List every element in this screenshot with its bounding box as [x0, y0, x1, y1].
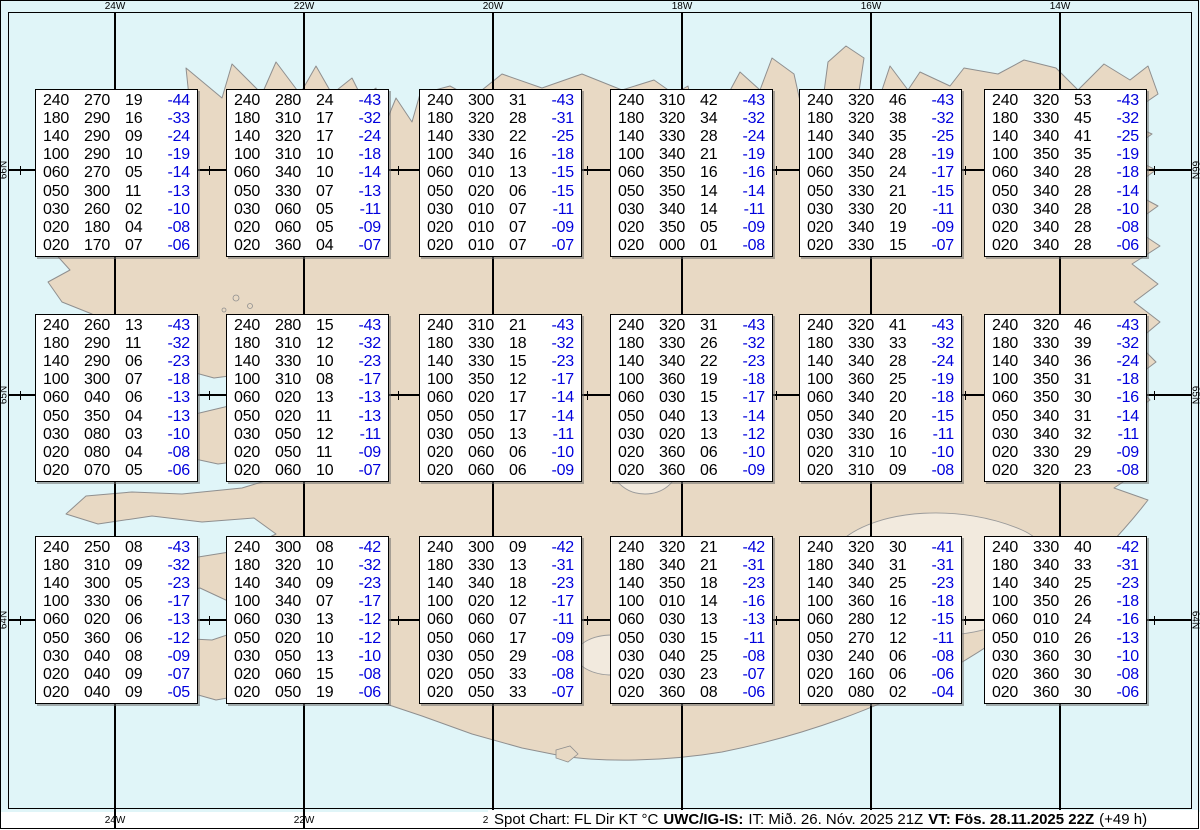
kt-value: 05 — [700, 219, 722, 236]
kt-value: 31 — [889, 557, 911, 574]
kt-value: 12 — [509, 593, 531, 610]
fl-value: 100 — [234, 371, 264, 388]
temp-value: -23 — [922, 575, 954, 592]
temp-value: -43 — [733, 317, 765, 334]
temp-value: -08 — [158, 219, 190, 236]
temp-value: -06 — [1107, 237, 1139, 254]
fl-value: 140 — [234, 575, 264, 592]
temp-value: -43 — [922, 92, 954, 109]
dir-value: 360 — [1033, 648, 1063, 665]
fl-value: 180 — [618, 110, 648, 127]
kt-value: 05 — [125, 462, 147, 479]
spot-row: 14034035-25 — [800, 128, 961, 145]
temp-value: -32 — [349, 110, 381, 127]
kt-value: 30 — [1074, 389, 1096, 406]
dir-value: 010 — [468, 201, 498, 218]
dir-value: 180 — [84, 219, 114, 236]
fl-value: 140 — [43, 353, 73, 370]
spot-row: 06034028-18 — [985, 164, 1146, 181]
spot-row: 06034010-14 — [227, 164, 388, 181]
temp-value: -42 — [349, 539, 381, 556]
spot-row: 10035026-18 — [985, 593, 1146, 610]
kt-value: 08 — [700, 684, 722, 701]
temp-value: -23 — [1107, 575, 1139, 592]
fl-value: 020 — [807, 684, 837, 701]
fl-value: 180 — [807, 557, 837, 574]
temp-value: -25 — [1107, 128, 1139, 145]
fl-value: 030 — [427, 426, 457, 443]
longitude-label: 16W — [861, 1, 882, 12]
kt-value: 12 — [889, 630, 911, 647]
fl-value: 030 — [43, 648, 73, 665]
spot-row: 05002011-13 — [227, 408, 388, 425]
fl-value: 020 — [427, 666, 457, 683]
spot-row: 10035012-17 — [420, 371, 581, 388]
kt-value: 21 — [700, 557, 722, 574]
spot-row: 06035030-16 — [985, 389, 1146, 406]
kt-value: 14 — [700, 593, 722, 610]
kt-value: 26 — [700, 335, 722, 352]
kt-value: 53 — [1074, 92, 1096, 109]
spot-row: 10035035-19 — [985, 146, 1146, 163]
fl-value: 100 — [43, 146, 73, 163]
dir-value: 360 — [1033, 684, 1063, 701]
dir-value: 010 — [1033, 611, 1063, 628]
spot-row: 10030007-18 — [36, 371, 197, 388]
kt-value: 10 — [889, 444, 911, 461]
kt-value: 19 — [700, 371, 722, 388]
temp-value: -19 — [922, 146, 954, 163]
spot-row: 03034014-11 — [611, 201, 772, 218]
dir-value: 020 — [468, 389, 498, 406]
temp-value: -16 — [1107, 611, 1139, 628]
dir-value: 330 — [468, 128, 498, 145]
fl-value: 050 — [234, 630, 264, 647]
temp-value: -43 — [349, 92, 381, 109]
temp-value: -14 — [1107, 183, 1139, 200]
temp-value: -13 — [733, 611, 765, 628]
spot-row: 02036030-08 — [985, 666, 1146, 683]
fl-value: 060 — [618, 164, 648, 181]
spot-row: 02006010-07 — [227, 462, 388, 479]
spot-row: 24032046-43 — [800, 92, 961, 109]
dir-value: 040 — [84, 648, 114, 665]
spot-row: 10033006-17 — [36, 593, 197, 610]
dir-value: 040 — [84, 684, 114, 701]
fl-value: 240 — [234, 92, 264, 109]
fl-value: 100 — [992, 371, 1022, 388]
temp-value: -15 — [542, 164, 574, 181]
spot-row: 24026013-43 — [36, 317, 197, 334]
kt-value: 15 — [509, 353, 531, 370]
temp-value: -17 — [158, 593, 190, 610]
dir-value: 060 — [468, 611, 498, 628]
spot-row: 05036006-12 — [36, 630, 197, 647]
kt-value: 11 — [125, 335, 147, 352]
spot-forecast-table-64N-18W: 24032021-4218034021-3114035018-231000101… — [610, 536, 773, 704]
dir-value: 050 — [275, 426, 305, 443]
temp-value: -08 — [1107, 666, 1139, 683]
fl-value: 030 — [43, 201, 73, 218]
temp-value: -10 — [349, 648, 381, 665]
fl-value: 100 — [807, 371, 837, 388]
temp-value: -13 — [158, 183, 190, 200]
kt-value: 28 — [889, 353, 911, 370]
fl-value: 100 — [807, 146, 837, 163]
kt-value: 10 — [316, 146, 338, 163]
dir-value: 350 — [659, 219, 689, 236]
fl-value: 100 — [234, 146, 264, 163]
dir-value: 030 — [659, 389, 689, 406]
temp-value: -08 — [733, 648, 765, 665]
temp-value: -32 — [158, 335, 190, 352]
dir-value: 320 — [1033, 92, 1063, 109]
dir-value: 340 — [1033, 557, 1063, 574]
dir-value: 350 — [1033, 146, 1063, 163]
kt-value: 30 — [889, 539, 911, 556]
temp-value: -12 — [158, 630, 190, 647]
kt-value: 11 — [316, 444, 338, 461]
spot-forecast-table-66N-18W: 24031042-4318032034-3214033028-241003402… — [610, 89, 773, 257]
kt-value: 13 — [316, 389, 338, 406]
dir-value: 300 — [468, 539, 498, 556]
fl-value: 180 — [43, 335, 73, 352]
spot-row: 10034016-18 — [420, 146, 581, 163]
temp-value: -18 — [922, 389, 954, 406]
kt-value: 17 — [509, 389, 531, 406]
fl-value: 140 — [427, 128, 457, 145]
kt-value: 12 — [316, 426, 338, 443]
kt-value: 25 — [889, 371, 911, 388]
temp-value: -17 — [349, 593, 381, 610]
kt-value: 25 — [700, 648, 722, 665]
fl-value: 020 — [234, 462, 264, 479]
fl-value: 020 — [807, 219, 837, 236]
dir-value: 350 — [848, 164, 878, 181]
temp-value: -14 — [733, 183, 765, 200]
spot-row: 24027019-44 — [36, 92, 197, 109]
dir-value: 340 — [468, 146, 498, 163]
temp-value: -11 — [542, 611, 574, 628]
spot-row: 24031021-43 — [420, 317, 581, 334]
spot-row: 14032017-24 — [227, 128, 388, 145]
kt-value: 28 — [1074, 183, 1096, 200]
dir-value: 290 — [84, 353, 114, 370]
temp-value: -32 — [1107, 335, 1139, 352]
temp-value: -31 — [922, 557, 954, 574]
kt-value: 19 — [889, 219, 911, 236]
kt-value: 31 — [700, 317, 722, 334]
fl-value: 060 — [618, 611, 648, 628]
dir-value: 040 — [659, 648, 689, 665]
fl-value: 020 — [427, 237, 457, 254]
fl-value: 180 — [618, 335, 648, 352]
temp-value: -31 — [542, 557, 574, 574]
spot-row: 14034036-24 — [985, 353, 1146, 370]
kt-value: 17 — [509, 408, 531, 425]
temp-value: -07 — [542, 684, 574, 701]
spot-row: 14033010-23 — [227, 353, 388, 370]
fl-value: 180 — [234, 110, 264, 127]
fl-value: 240 — [807, 317, 837, 334]
kt-value: 07 — [509, 201, 531, 218]
temp-value: -11 — [542, 426, 574, 443]
kt-value: 09 — [125, 557, 147, 574]
fl-value: 020 — [992, 684, 1022, 701]
kt-value: 46 — [889, 92, 911, 109]
temp-value: -09 — [542, 462, 574, 479]
spot-forecast-table-66N-22W: 24028024-4318031017-3214032017-241003101… — [226, 89, 389, 257]
fl-value: 180 — [234, 557, 264, 574]
fl-value: 140 — [43, 128, 73, 145]
kt-value: 04 — [125, 408, 147, 425]
spot-row: 05027012-11 — [800, 630, 961, 647]
temp-value: -14 — [1107, 408, 1139, 425]
dir-value: 340 — [1033, 426, 1063, 443]
dir-value: 330 — [275, 183, 305, 200]
dir-value: 350 — [468, 371, 498, 388]
fl-value: 030 — [234, 201, 264, 218]
dir-value: 340 — [1033, 164, 1063, 181]
dir-value: 340 — [1033, 353, 1063, 370]
dir-value: 050 — [468, 408, 498, 425]
spot-row: 24033040-42 — [985, 539, 1146, 556]
spot-row: 10035031-18 — [985, 371, 1146, 388]
kt-value: 12 — [509, 371, 531, 388]
temp-value: -42 — [1107, 539, 1139, 556]
dir-value: 350 — [1033, 371, 1063, 388]
dir-value: 010 — [1033, 630, 1063, 647]
temp-value: -08 — [1107, 462, 1139, 479]
temp-value: -04 — [922, 684, 954, 701]
fl-value: 020 — [234, 684, 264, 701]
temp-value: -43 — [1107, 92, 1139, 109]
temp-value: -18 — [349, 146, 381, 163]
fl-value: 140 — [992, 575, 1022, 592]
temp-value: -11 — [922, 426, 954, 443]
dir-value: 320 — [848, 539, 878, 556]
fl-value: 050 — [992, 183, 1022, 200]
kt-value: 10 — [316, 630, 338, 647]
temp-value: -24 — [1107, 353, 1139, 370]
temp-value: -32 — [922, 335, 954, 352]
fl-value: 020 — [807, 237, 837, 254]
fl-value: 050 — [234, 408, 264, 425]
kt-value: 42 — [700, 92, 722, 109]
spot-row: 02001007-07 — [420, 237, 581, 254]
fl-value: 020 — [43, 237, 73, 254]
spot-row: 24028015-43 — [227, 317, 388, 334]
fl-value: 180 — [807, 110, 837, 127]
fl-value: 050 — [427, 408, 457, 425]
spot-row: 02017007-06 — [36, 237, 197, 254]
fl-value: 140 — [807, 128, 837, 145]
kt-value: 45 — [1074, 110, 1096, 127]
temp-value: -07 — [733, 666, 765, 683]
fl-value: 140 — [43, 575, 73, 592]
temp-value: -08 — [542, 648, 574, 665]
dir-value: 290 — [84, 146, 114, 163]
dir-value: 160 — [848, 666, 878, 683]
fl-value: 100 — [618, 371, 648, 388]
fl-value: 180 — [427, 335, 457, 352]
kt-value: 04 — [316, 237, 338, 254]
dir-value: 080 — [84, 426, 114, 443]
kt-value: 05 — [316, 219, 338, 236]
spot-row: 05006017-09 — [420, 630, 581, 647]
dir-value: 000 — [659, 237, 689, 254]
kt-value: 08 — [125, 648, 147, 665]
temp-value: -31 — [733, 557, 765, 574]
kt-value: 33 — [509, 666, 531, 683]
longitude-label: 22W — [294, 1, 315, 12]
temp-value: -17 — [542, 593, 574, 610]
fl-value: 030 — [427, 648, 457, 665]
spot-row: 10034028-19 — [800, 146, 961, 163]
dir-value: 300 — [468, 92, 498, 109]
temp-value: -41 — [922, 539, 954, 556]
fl-value: 240 — [618, 539, 648, 556]
kt-value: 13 — [125, 317, 147, 334]
spot-row: 05004013-14 — [611, 408, 772, 425]
temp-value: -13 — [349, 183, 381, 200]
temp-value: -11 — [922, 630, 954, 647]
dir-value: 320 — [848, 317, 878, 334]
temp-value: -08 — [542, 666, 574, 683]
spot-row: 06002006-13 — [36, 611, 197, 628]
spot-row: 02005019-06 — [227, 684, 388, 701]
kt-value: 13 — [700, 426, 722, 443]
fl-value: 060 — [807, 611, 837, 628]
spot-row: 18032010-32 — [227, 557, 388, 574]
kt-value: 39 — [1074, 335, 1096, 352]
dir-value: 340 — [1033, 201, 1063, 218]
temp-value: -05 — [158, 684, 190, 701]
dir-value: 330 — [848, 201, 878, 218]
footer-bar: Spot Chart: FL Dir KT °CUWC/IG-IS:IT: Mi… — [488, 810, 1198, 829]
dir-value: 320 — [848, 110, 878, 127]
kt-value: 34 — [700, 110, 722, 127]
spot-row: 14033028-24 — [611, 128, 772, 145]
dir-value: 290 — [84, 335, 114, 352]
temp-value: -19 — [1107, 146, 1139, 163]
dir-value: 020 — [275, 389, 305, 406]
temp-value: -11 — [922, 201, 954, 218]
dir-value: 330 — [84, 593, 114, 610]
temp-value: -23 — [542, 353, 574, 370]
dir-value: 340 — [1033, 575, 1063, 592]
dir-value: 360 — [659, 444, 689, 461]
kt-value: 26 — [1074, 593, 1096, 610]
fl-value: 240 — [43, 539, 73, 556]
spot-row: 18031017-32 — [227, 110, 388, 127]
temp-value: -10 — [1107, 648, 1139, 665]
dir-value: 340 — [275, 593, 305, 610]
kt-value: 33 — [1074, 557, 1096, 574]
fl-value: 020 — [992, 462, 1022, 479]
kt-value: 03 — [125, 426, 147, 443]
temp-value: -10 — [158, 426, 190, 443]
kt-value: 13 — [316, 611, 338, 628]
spot-row: 14030005-23 — [36, 575, 197, 592]
dir-value: 340 — [275, 575, 305, 592]
fl-value: 020 — [807, 666, 837, 683]
fl-value: 060 — [807, 164, 837, 181]
fl-value: 020 — [234, 666, 264, 683]
kt-value: 09 — [509, 539, 531, 556]
fl-value: 020 — [234, 219, 264, 236]
spot-forecast-table-64N-24W: 24025008-4318031009-3214030005-231003300… — [35, 536, 198, 704]
fl-value: 140 — [807, 353, 837, 370]
dir-value: 050 — [468, 684, 498, 701]
kt-value: 02 — [889, 684, 911, 701]
fl-value: 050 — [427, 183, 457, 200]
dir-value: 350 — [659, 575, 689, 592]
temp-value: -15 — [922, 408, 954, 425]
spot-row: 18033013-31 — [420, 557, 581, 574]
fl-value: 100 — [427, 371, 457, 388]
fl-value: 100 — [992, 146, 1022, 163]
fl-value: 060 — [992, 389, 1022, 406]
spot-row: 03008003-10 — [36, 426, 197, 443]
spot-row: 03024006-08 — [800, 648, 961, 665]
kt-value: 22 — [700, 353, 722, 370]
temp-value: -06 — [1107, 684, 1139, 701]
fl-value: 140 — [807, 575, 837, 592]
kt-value: 16 — [700, 164, 722, 181]
dir-value: 340 — [848, 557, 878, 574]
temp-value: -24 — [349, 128, 381, 145]
spot-forecast-table-65N-20W: 24031021-4318033018-3214033015-231003501… — [419, 314, 582, 482]
temp-value: -09 — [542, 219, 574, 236]
dir-value: 360 — [659, 462, 689, 479]
spot-row: 02036008-06 — [611, 684, 772, 701]
fl-value: 020 — [618, 666, 648, 683]
fl-value: 100 — [992, 593, 1022, 610]
temp-value: -32 — [922, 110, 954, 127]
spot-row: 02034019-09 — [800, 219, 961, 236]
dir-value: 050 — [468, 666, 498, 683]
kt-value: 16 — [889, 593, 911, 610]
dir-value: 030 — [659, 666, 689, 683]
temp-value: -42 — [542, 539, 574, 556]
temp-value: -15 — [542, 183, 574, 200]
fl-value: 140 — [618, 128, 648, 145]
dir-value: 330 — [468, 557, 498, 574]
dir-value: 250 — [84, 539, 114, 556]
kt-value: 04 — [125, 219, 147, 236]
dir-value: 330 — [848, 183, 878, 200]
spot-chart-canvas: 24W22W20W18W16W14W24W22W20W66N65N64N66N6… — [0, 0, 1200, 830]
kt-value: 02 — [125, 201, 147, 218]
temp-value: -14 — [542, 408, 574, 425]
spot-row: 24030008-42 — [227, 539, 388, 556]
dir-value: 320 — [275, 557, 305, 574]
fl-value: 060 — [43, 389, 73, 406]
temp-value: -08 — [922, 648, 954, 665]
temp-value: -11 — [349, 201, 381, 218]
dir-value: 340 — [848, 408, 878, 425]
spot-forecast-table-64N-14W: 24033040-4218034033-3114034025-231003502… — [984, 536, 1147, 704]
fl-value: 180 — [427, 110, 457, 127]
spot-row: 14034025-23 — [985, 575, 1146, 592]
spot-row: 02031010-10 — [800, 444, 961, 461]
dir-value: 320 — [848, 92, 878, 109]
spot-row: 10034007-17 — [227, 593, 388, 610]
dir-value: 350 — [659, 164, 689, 181]
spot-row: 24030031-43 — [420, 92, 581, 109]
spot-row: 02007005-06 — [36, 462, 197, 479]
